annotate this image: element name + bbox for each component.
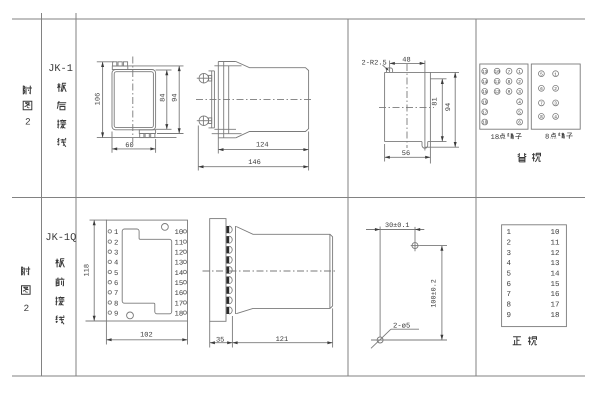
svg-text:18: 18 <box>482 121 488 126</box>
svg-text:102: 102 <box>140 332 153 340</box>
svg-text:106: 106 <box>95 93 103 106</box>
svg-text:8: 8 <box>508 80 511 85</box>
svg-text:8: 8 <box>507 300 512 309</box>
svg-text:JK-1: JK-1 <box>48 63 73 75</box>
svg-text:16: 16 <box>482 100 488 105</box>
svg-text:2-ø5: 2-ø5 <box>393 322 410 330</box>
svg-text:JK-1Q: JK-1Q <box>45 232 76 244</box>
svg-text:9: 9 <box>507 311 512 320</box>
svg-text:14: 14 <box>551 271 561 279</box>
svg-text:12: 12 <box>175 250 184 258</box>
svg-text:3: 3 <box>114 250 118 258</box>
svg-text:13: 13 <box>482 70 488 75</box>
svg-text:17: 17 <box>551 301 560 309</box>
svg-text:1: 1 <box>518 70 521 75</box>
svg-text:7: 7 <box>114 290 118 298</box>
svg-text:17: 17 <box>175 300 184 308</box>
svg-text:9: 9 <box>114 310 118 318</box>
svg-text:18: 18 <box>491 134 500 142</box>
svg-text:60: 60 <box>125 142 133 150</box>
svg-text:7: 7 <box>507 291 512 299</box>
svg-text:124: 124 <box>256 141 269 149</box>
svg-text:48: 48 <box>402 56 410 64</box>
svg-text:6: 6 <box>507 280 512 289</box>
svg-text:10: 10 <box>494 70 500 75</box>
svg-text:30±0.1: 30±0.1 <box>385 222 409 230</box>
svg-text:4: 4 <box>114 260 118 268</box>
svg-text:18: 18 <box>551 311 560 320</box>
svg-text:5: 5 <box>507 271 512 279</box>
svg-text:12: 12 <box>551 249 560 258</box>
svg-text:94: 94 <box>172 93 180 101</box>
svg-text:2: 2 <box>114 239 118 247</box>
svg-text:11: 11 <box>175 239 184 247</box>
svg-text:5: 5 <box>114 270 118 278</box>
svg-text:10: 10 <box>551 228 561 237</box>
svg-text:2-R2.5: 2-R2.5 <box>362 59 387 67</box>
svg-text:6: 6 <box>518 121 521 126</box>
svg-text:6: 6 <box>114 280 118 288</box>
svg-text:13: 13 <box>551 259 561 268</box>
svg-text:81: 81 <box>432 97 440 105</box>
svg-text:2: 2 <box>25 117 31 128</box>
svg-text:2: 2 <box>554 87 557 92</box>
svg-text:15: 15 <box>175 280 184 288</box>
svg-text:4: 4 <box>518 100 521 105</box>
svg-text:4: 4 <box>507 260 512 268</box>
svg-text:1: 1 <box>554 72 557 77</box>
svg-text:18: 18 <box>175 310 184 318</box>
svg-text:146: 146 <box>248 159 261 167</box>
svg-text:7: 7 <box>508 70 511 75</box>
svg-text:11: 11 <box>551 240 561 248</box>
svg-text:5: 5 <box>540 72 543 77</box>
svg-text:121: 121 <box>276 336 289 344</box>
svg-text:8: 8 <box>540 115 543 120</box>
svg-text:94: 94 <box>445 103 453 111</box>
svg-text:9: 9 <box>508 90 511 95</box>
svg-text:35: 35 <box>216 337 224 345</box>
svg-text:3: 3 <box>507 249 512 258</box>
svg-text:17: 17 <box>482 111 488 116</box>
svg-text:118: 118 <box>83 264 91 277</box>
svg-text:11: 11 <box>494 80 500 85</box>
svg-text:7: 7 <box>540 102 543 107</box>
svg-text:2: 2 <box>518 80 521 85</box>
svg-text:4: 4 <box>554 115 557 120</box>
svg-text:5: 5 <box>518 111 521 116</box>
svg-text:14: 14 <box>482 80 488 85</box>
svg-text:15: 15 <box>551 281 561 289</box>
svg-text:100±0.2: 100±0.2 <box>430 279 438 308</box>
svg-text:1: 1 <box>507 229 512 237</box>
svg-text:1: 1 <box>114 229 118 237</box>
svg-text:56: 56 <box>402 150 410 158</box>
svg-text:84: 84 <box>159 93 167 101</box>
svg-text:3: 3 <box>518 90 521 95</box>
svg-text:16: 16 <box>175 290 184 298</box>
svg-text:13: 13 <box>175 260 184 268</box>
svg-text:16: 16 <box>551 290 561 299</box>
svg-text:12: 12 <box>494 90 500 95</box>
svg-text:10: 10 <box>175 229 184 237</box>
svg-text:6: 6 <box>540 87 543 92</box>
svg-text:15: 15 <box>482 90 488 95</box>
svg-text:8: 8 <box>114 300 118 308</box>
svg-text:8: 8 <box>545 134 549 142</box>
svg-text:2: 2 <box>24 303 30 314</box>
svg-text:2: 2 <box>507 239 512 248</box>
svg-text:14: 14 <box>175 270 184 278</box>
svg-text:3: 3 <box>554 102 557 107</box>
